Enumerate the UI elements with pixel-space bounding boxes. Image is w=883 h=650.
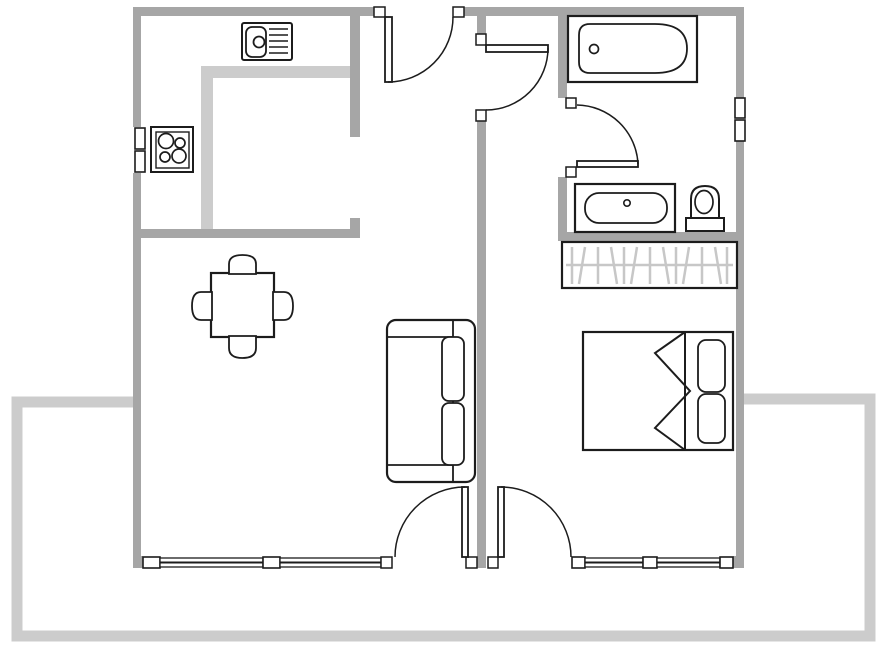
- wall-top-left: [133, 7, 374, 16]
- wall-top-right: [453, 7, 744, 16]
- dining-chair-west: [192, 292, 212, 320]
- vanity-drain: [624, 200, 630, 206]
- hallway-door-swing-arc: [486, 48, 548, 110]
- wall-bottom-right-corner: [733, 556, 744, 568]
- living-room-balcony-door-jamb-right: [466, 557, 477, 568]
- stove-burner-bottom-right: [172, 149, 186, 163]
- bathroom-door-leaf: [577, 161, 638, 167]
- wall-bathroom-bottom: [558, 232, 744, 241]
- living-room-balcony-door-leaf: [462, 487, 468, 557]
- entry-door-jamb-left: [374, 7, 385, 17]
- stove-burner-top-right: [175, 138, 185, 148]
- vanity-basin: [585, 193, 667, 223]
- wall-bottom-left-corner: [133, 556, 143, 568]
- bedroom-balcony-door-jamb-left: [488, 557, 498, 568]
- hallway-door-jamb-top: [476, 34, 486, 45]
- kitchen-window-upper-pane: [135, 128, 145, 149]
- entry-door-swing-arc: [388, 17, 453, 82]
- entry-door-leaf: [385, 17, 392, 82]
- bedroom-window-jamb-left: [572, 557, 585, 568]
- bathroom-door-jamb-bottom: [566, 167, 576, 177]
- stove-burner-bottom-left: [160, 152, 170, 162]
- bathroom-window-lower-pane: [735, 120, 745, 141]
- kitchen-counter-edge: [207, 72, 350, 229]
- wall-kitchen-right-upper: [350, 16, 360, 137]
- floor-plan: [0, 0, 883, 650]
- bathroom-door-swing-arc: [577, 105, 638, 164]
- dining-chair-east: [273, 292, 293, 320]
- wall-right-upper: [736, 7, 744, 98]
- stove-outer: [151, 127, 193, 172]
- toilet-base: [686, 218, 724, 231]
- kitchen-window-lower-pane: [135, 151, 145, 172]
- sofa-cushion-top: [442, 337, 464, 401]
- bedroom-balcony-door-leaf: [498, 487, 504, 557]
- dining-chair-north: [229, 255, 256, 274]
- living-room-window-jamb-mid: [263, 557, 280, 568]
- wall-central-main: [477, 121, 486, 568]
- bathroom-window-upper-pane: [735, 98, 745, 118]
- sofa-cushion-bottom: [442, 403, 464, 465]
- wall-bathroom-left-upper: [558, 16, 567, 98]
- bedroom-window-jamb-right: [720, 557, 733, 568]
- dining-table: [211, 273, 274, 337]
- dining-chair-south: [229, 336, 256, 358]
- bathtub-drain: [590, 45, 599, 54]
- hallway-door-leaf: [486, 45, 548, 52]
- bed-pillow-bottom: [698, 394, 725, 443]
- bathroom-door-jamb-top: [566, 98, 576, 108]
- bedroom-balcony-door-swing-arc: [501, 487, 571, 557]
- living-room-window-jamb-left: [143, 557, 160, 568]
- bed-pillow-top: [698, 340, 725, 392]
- wall-left-upper: [133, 7, 141, 127]
- wall-bathroom-left-lower: [558, 177, 567, 233]
- bedroom-window-jamb-mid: [643, 557, 657, 568]
- stove-burner-top-left: [159, 134, 174, 149]
- living-room-balcony-door-jamb-left: [381, 557, 392, 568]
- floor-plan-page: [0, 0, 883, 650]
- living-room-balcony-door-swing-arc: [395, 487, 465, 557]
- kitchen-sink-faucet: [254, 37, 265, 48]
- wall-kitchen-bottom: [133, 229, 360, 238]
- hallway-door-jamb-bottom: [476, 110, 486, 121]
- toilet-bowl: [695, 191, 713, 214]
- wall-right-lower: [736, 141, 744, 568]
- wall-central-top-stub: [477, 16, 486, 34]
- entry-door-jamb-right: [453, 7, 464, 17]
